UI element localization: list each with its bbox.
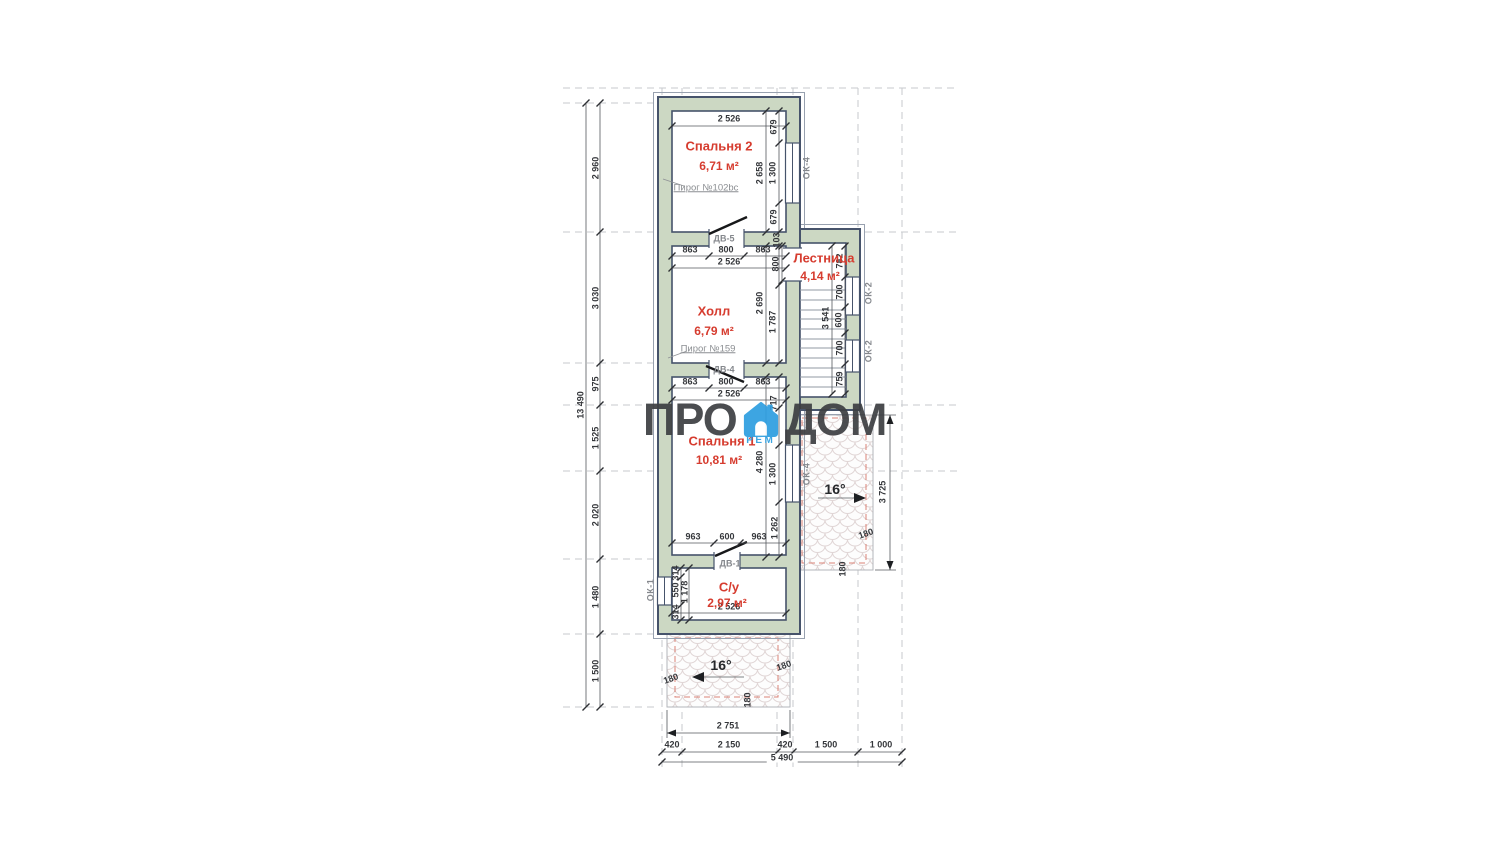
overhang-label: 180 <box>744 692 753 707</box>
watermark-logo: ПРО РЕМ ДОМ <box>643 398 886 446</box>
dimension-label: 800 <box>718 246 733 255</box>
window-label: ОК-2 <box>865 282 874 305</box>
dimension-label: 600 <box>835 312 844 327</box>
logo-text-left: ПРО <box>643 398 737 442</box>
dimension-label: 420 <box>664 741 679 750</box>
window-label: ОК-4 <box>803 463 812 486</box>
dimension-label: 2 526 <box>718 115 741 124</box>
room-area-label: 6,79 м² <box>694 325 734 337</box>
floor-plan-page: 2 5268638008632 5268638008632 5269636009… <box>0 0 1500 849</box>
overhang-label: 180 <box>839 561 848 576</box>
dimension-label: 863 <box>755 246 770 255</box>
dimension-label: 2 751 <box>717 722 740 731</box>
note-label: Пирог №159 <box>681 344 736 354</box>
room-area-label: 4,14 м² <box>800 270 840 282</box>
dimension-label: 800 <box>772 256 781 271</box>
dimension-label: 1 300 <box>769 463 778 486</box>
logo-house: РЕМ <box>742 401 780 446</box>
dimension-label: 1 178 <box>681 581 690 604</box>
dimension-total-label: 5 490 <box>767 754 798 763</box>
dimension-label: 863 <box>682 378 697 387</box>
door-label: ДВ-4 <box>714 366 735 375</box>
dimension-label: 103 <box>773 232 782 247</box>
dimension-label: 1 000 <box>870 741 893 750</box>
dimension-label: 2 658 <box>756 162 765 185</box>
dimension-label: 1 300 <box>769 162 778 185</box>
room-name-label: С/у <box>719 581 739 594</box>
dimension-label: 700 <box>836 284 845 299</box>
dimension-label: 975 <box>592 376 601 391</box>
door-label: ДВ-1 <box>720 560 741 569</box>
dimension-label: 1 787 <box>769 311 778 334</box>
dimension-label: 2 960 <box>592 157 601 180</box>
dimension-label: 679 <box>770 119 779 134</box>
dimension-label: 314 <box>672 565 681 580</box>
dimension-label: 314 <box>672 604 681 619</box>
dimension-total-label: 13 490 <box>577 391 586 419</box>
dimension-label: 679 <box>770 209 779 224</box>
dimension-label: 1 262 <box>771 517 780 540</box>
dimension-label: 4 280 <box>756 451 765 474</box>
dimension-label: 700 <box>836 340 845 355</box>
logo-text-right: ДОМ <box>785 398 887 442</box>
door-label: ДВ-5 <box>714 235 735 244</box>
room-area-label: 10,81 м² <box>696 454 742 466</box>
window-label: ОК-4 <box>803 157 812 180</box>
dimension-label: 963 <box>751 533 766 542</box>
dimension-label: 759 <box>836 371 845 386</box>
roof-slope-label: 16° <box>824 482 845 496</box>
dimension-label: 800 <box>718 378 733 387</box>
dimension-label: 3 541 <box>822 307 831 330</box>
roof-slope-label: 16° <box>710 658 731 672</box>
dimension-label: 963 <box>685 533 700 542</box>
room-area-label: 6,71 м² <box>699 160 739 172</box>
room-name-label: Спальня 2 <box>686 140 753 153</box>
window-label: ОК-2 <box>865 340 874 363</box>
dimension-label: 600 <box>719 533 734 542</box>
room-name-label: Холл <box>698 305 731 318</box>
dimension-label: 420 <box>777 741 792 750</box>
dimension-label: 863 <box>755 378 770 387</box>
logo-sub-text: РЕМ <box>746 435 775 446</box>
dimension-label: 1 480 <box>592 586 601 609</box>
note-label: Пирог №102bc <box>674 183 739 193</box>
room-name-label: Лестница <box>793 252 854 265</box>
dimension-label: 1 525 <box>592 427 601 450</box>
house-icon <box>742 401 780 437</box>
dimension-label: 3 030 <box>592 287 601 310</box>
dimension-label: 2 020 <box>592 504 601 527</box>
dimension-label: 2 690 <box>756 292 765 315</box>
dimension-label: 2 150 <box>718 741 741 750</box>
dimension-label: 1 500 <box>815 741 838 750</box>
room-area-label: 2,97 м² <box>707 597 747 609</box>
dimension-label: 2 526 <box>718 258 741 267</box>
window-label: ОК-1 <box>647 579 656 602</box>
dimension-label: 1 500 <box>592 660 601 683</box>
dimension-label: 863 <box>682 246 697 255</box>
dimension-label: 3 725 <box>879 481 888 504</box>
